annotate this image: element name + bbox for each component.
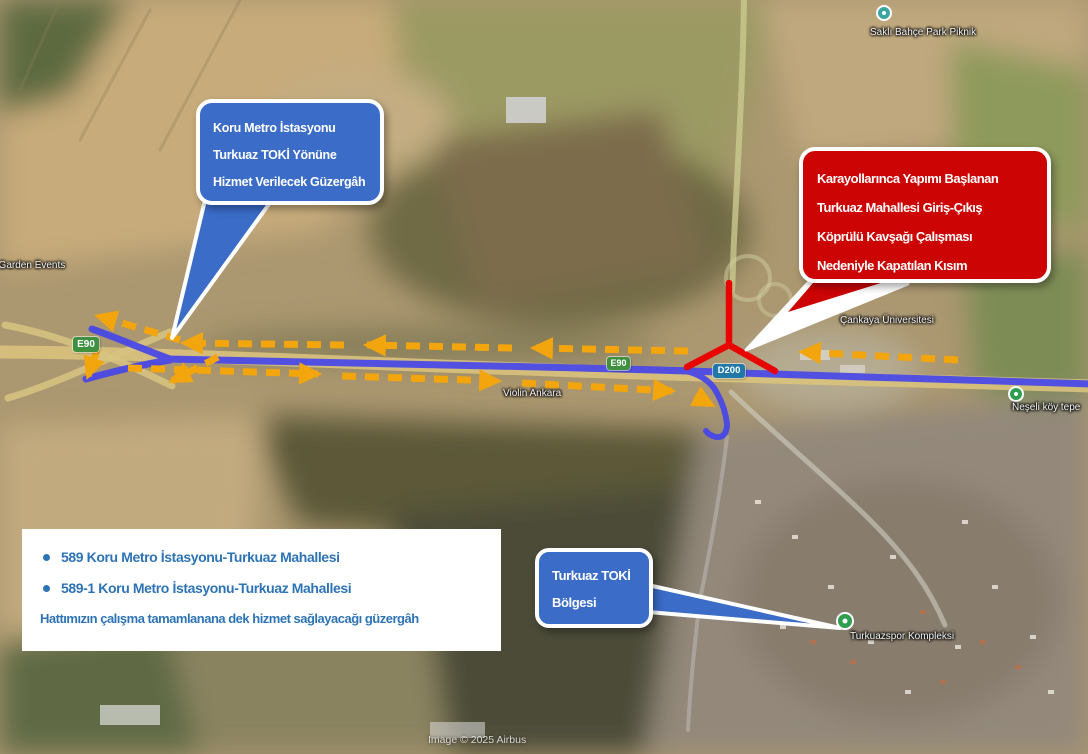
callout-line: Bölgesi <box>552 589 645 616</box>
poi-label-neselikoy: Neşeli köy tepe <box>1012 402 1080 413</box>
poi-label-sakli-bahce: Saklı Bahçe Park Piknik <box>870 27 976 38</box>
legend-box: 589 Koru Metro İstasyonu-Turkuaz Mahalle… <box>22 529 501 651</box>
legend-item: 589 Koru Metro İstasyonu-Turkuaz Mahalle… <box>43 549 495 565</box>
bullet-icon <box>43 554 50 561</box>
callout-line: Turkuaz TOKİ <box>552 562 645 589</box>
map-canvas: E90 E90 D200 di Garden Events Saklı Bahç… <box>0 0 1088 754</box>
bullet-icon <box>43 585 50 592</box>
road-shield-e90-mid: E90 <box>607 357 630 370</box>
callout-line: Turkuaz TOKİ Yönüne <box>213 142 376 169</box>
callout-line: Koru Metro İstasyonu <box>213 115 376 142</box>
callout-line: Nedeniyle Kapatılan Kısım <box>817 251 1043 280</box>
callout-line: Karayollarınca Yapımı Başlanan <box>817 164 1043 193</box>
callout-koru-route: Koru Metro İstasyonu Turkuaz TOKİ Yönüne… <box>196 99 384 205</box>
callout-line: Köprülü Kavşağı Çalışması <box>817 222 1043 251</box>
road-shield-e90-west: E90 <box>73 337 99 352</box>
callout-toki-area: Turkuaz TOKİ Bölgesi <box>535 548 653 628</box>
map-attribution: Image © 2025 Airbus <box>428 734 526 746</box>
legend-note: Hattımızın çalışma tamamlanana dek hizme… <box>40 611 495 626</box>
poi-label-violin-ankara: Violin Ankara <box>503 388 561 399</box>
poi-label-garden-events: di Garden Events <box>0 260 65 271</box>
poi-label-turkuazspor: Turkuazspor Kompleksi <box>850 631 954 642</box>
legend-item-label: 589-1 Koru Metro İstasyonu-Turkuaz Mahal… <box>61 580 351 596</box>
road-shield-d200: D200 <box>713 364 745 378</box>
poi-label-cankaya-universitesi: Çankaya Üniversitesi <box>840 315 934 326</box>
callout-line: Hizmet Verilecek Güzergâh <box>213 169 376 196</box>
legend-item-label: 589 Koru Metro İstasyonu-Turkuaz Mahalle… <box>61 549 340 565</box>
callout-line: Turkuaz Mahallesi Giriş-Çıkış <box>817 193 1043 222</box>
legend-item: 589-1 Koru Metro İstasyonu-Turkuaz Mahal… <box>43 580 495 596</box>
callout-closure: Karayollarınca Yapımı Başlanan Turkuaz M… <box>799 147 1051 283</box>
